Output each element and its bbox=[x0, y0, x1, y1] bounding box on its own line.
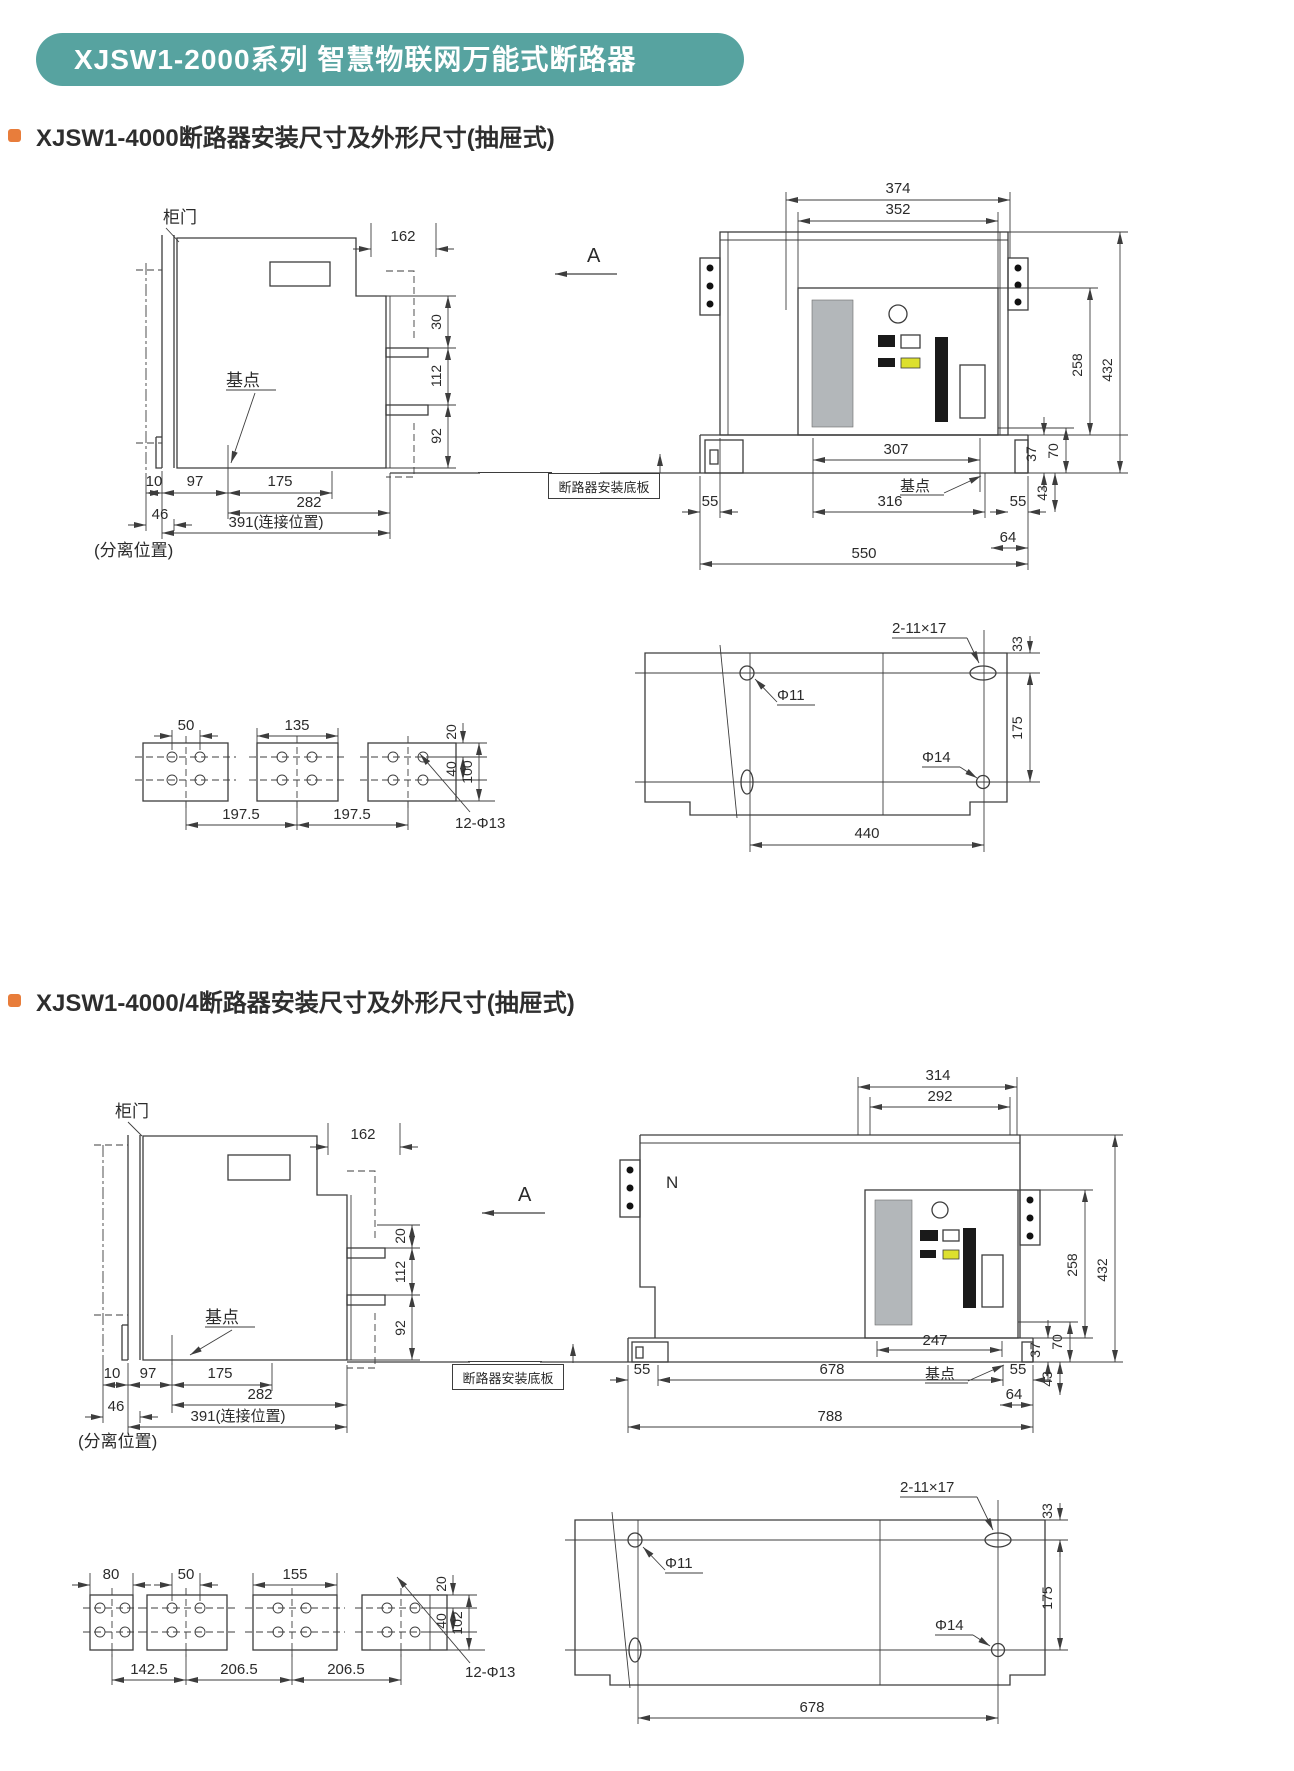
breaker-button-2 bbox=[932, 1202, 948, 1218]
holes-12-phi13-label: 12-Φ13 bbox=[455, 815, 505, 832]
dim-55-left-2: 55 bbox=[634, 1361, 651, 1378]
dim-282-2: 282 bbox=[247, 1386, 272, 1403]
dim-391-connect-2: 391(连接位置) bbox=[190, 1408, 285, 1425]
dim-70: 70 bbox=[1045, 443, 1061, 459]
dim-33-2: 33 bbox=[1039, 1503, 1055, 1519]
breaker-panel-gray-2 bbox=[875, 1200, 912, 1325]
dim-33: 33 bbox=[1009, 636, 1025, 652]
dim-307: 307 bbox=[883, 441, 908, 458]
slot-2-11x17-label-2: 2-11×17 bbox=[900, 1479, 954, 1496]
indicator-yellow-2 bbox=[943, 1250, 959, 1259]
dim-314: 314 bbox=[925, 1067, 950, 1084]
dim-10: 10 bbox=[146, 473, 163, 490]
s2-front-view-drawing: N bbox=[540, 985, 1160, 1455]
dim-175-top: 175 bbox=[1009, 716, 1025, 740]
dim-206-5-b: 206.5 bbox=[327, 1661, 365, 1678]
bullet-icon bbox=[8, 129, 21, 142]
dim-55-left: 55 bbox=[702, 493, 719, 510]
dim-80: 80 bbox=[103, 1566, 120, 1583]
phi14-label: Φ14 bbox=[922, 749, 951, 766]
s1-front-dimensions: 374 352 258 432 37 70 43 307 基点 bbox=[682, 180, 1128, 570]
s1-side-dimensions: 162 30 112 92 基点 10 97 17 bbox=[94, 223, 456, 560]
dim-247: 247 bbox=[922, 1332, 947, 1349]
dim-316: 316 bbox=[877, 493, 902, 510]
dim-97-2: 97 bbox=[140, 1365, 157, 1382]
s2-plates-dimensions: 80 50 155 20 40 102 142.5 bbox=[72, 1566, 515, 1685]
s1-plates-dimensions: 50 135 20 40 100 197.5 197.5 12-Φ13 bbox=[154, 717, 505, 832]
separated-position-label-2: (分离位置) bbox=[78, 1432, 157, 1451]
dim-440: 440 bbox=[854, 825, 879, 842]
s1-top-view-drawing: 2-11×17 Φ11 Φ14 33 175 440 bbox=[615, 540, 1035, 860]
dim-175-2: 175 bbox=[207, 1365, 232, 1382]
dim-50: 50 bbox=[178, 717, 195, 734]
dim-432-2: 432 bbox=[1094, 1258, 1110, 1282]
dim-197-5-a: 197.5 bbox=[222, 806, 260, 823]
dim-258: 258 bbox=[1069, 353, 1085, 377]
dim-70-2: 70 bbox=[1049, 1334, 1065, 1350]
base-point-label: 基点 bbox=[226, 371, 260, 390]
breaker-handle bbox=[935, 337, 948, 422]
dim-175-top-2: 175 bbox=[1039, 1586, 1055, 1610]
dim-55-right-2: 55 bbox=[1010, 1361, 1027, 1378]
phi14-label-2: Φ14 bbox=[935, 1617, 964, 1634]
s2-side-dimensions: 162 20 112 92 基点 10 97 17 bbox=[78, 1123, 420, 1451]
s1-side-view-drawing: 柜门 162 bbox=[80, 175, 480, 565]
s2-top-view-drawing: 2-11×17 Φ11 Φ14 33 175 678 bbox=[540, 1470, 1110, 1770]
dim-46: 46 bbox=[152, 506, 169, 523]
s2-side-structure bbox=[94, 1122, 470, 1368]
bullet-icon bbox=[8, 994, 21, 1007]
dim-112-2: 112 bbox=[392, 1261, 408, 1284]
indicator-yellow bbox=[901, 358, 920, 368]
s1-front-structure bbox=[600, 232, 1028, 473]
breaker-panel-gray bbox=[812, 300, 853, 427]
phi11-label: Φ11 bbox=[777, 687, 805, 704]
dim-55-right: 55 bbox=[1010, 493, 1027, 510]
dim-391-connect: 391(连接位置) bbox=[228, 514, 323, 531]
dim-92-2: 92 bbox=[392, 1320, 408, 1336]
dim-40: 40 bbox=[443, 761, 459, 777]
base-point-label-front: 基点 bbox=[900, 478, 930, 495]
breaker-handle-2 bbox=[963, 1228, 976, 1308]
dim-37: 37 bbox=[1023, 446, 1039, 462]
page-title-banner: XJSW1-2000系列 智慧物联网万能式断路器 bbox=[36, 33, 744, 86]
s1-top-structure bbox=[635, 630, 1015, 818]
dim-20-3: 20 bbox=[433, 1576, 449, 1592]
view-a-label: A bbox=[587, 245, 601, 267]
dim-678: 678 bbox=[819, 1361, 844, 1378]
dim-20-2: 20 bbox=[392, 1228, 408, 1244]
dim-50-2: 50 bbox=[178, 1566, 195, 1583]
dim-432: 432 bbox=[1099, 358, 1115, 382]
breaker-button bbox=[889, 305, 907, 323]
page: XJSW1-2000系列 智慧物联网万能式断路器 XJSW1-4000断路器安装… bbox=[0, 0, 1294, 1771]
dim-100: 100 bbox=[459, 760, 475, 784]
slot-2-11x17-label: 2-11×17 bbox=[892, 620, 946, 637]
view-a-label-2: A bbox=[518, 1184, 532, 1206]
s1-top-dimensions: 2-11×17 Φ11 Φ14 33 175 440 bbox=[750, 620, 1040, 852]
s1-front-view-drawing: 374 352 258 432 37 70 43 307 基点 bbox=[600, 160, 1160, 570]
dim-162: 162 bbox=[390, 228, 415, 245]
s2-side-view-drawing: 柜门 162 bbox=[60, 975, 470, 1455]
dim-43: 43 bbox=[1034, 485, 1050, 501]
dim-282: 282 bbox=[296, 494, 321, 511]
dim-64-2: 64 bbox=[1006, 1386, 1023, 1403]
s2-view-a-arrow: A bbox=[470, 1175, 550, 1223]
dim-206-5-a: 206.5 bbox=[220, 1661, 258, 1678]
phi11-label-2: Φ11 bbox=[665, 1555, 693, 1572]
dim-197-5-b: 197.5 bbox=[333, 806, 371, 823]
dim-155: 155 bbox=[282, 1566, 307, 1583]
s1-plates-structure bbox=[135, 736, 464, 808]
dim-175: 175 bbox=[267, 473, 292, 490]
s1-base-line bbox=[478, 472, 552, 473]
s2-hole-plates-drawing: 80 50 155 20 40 102 142.5 bbox=[45, 1555, 535, 1735]
cabinet-door-label: 柜门 bbox=[163, 208, 197, 227]
s2-top-structure bbox=[565, 1500, 1055, 1688]
s2-front-structure: N bbox=[540, 1135, 1040, 1362]
holes-12-phi13-label-2: 12-Φ13 bbox=[465, 1664, 515, 1681]
cabinet-door-label-2: 柜门 bbox=[115, 1102, 149, 1121]
dim-40-2: 40 bbox=[433, 1613, 449, 1629]
dim-97: 97 bbox=[187, 473, 204, 490]
dim-788: 788 bbox=[817, 1408, 842, 1425]
base-point-label-2: 基点 bbox=[205, 1308, 239, 1327]
s2-plates-structure bbox=[83, 1588, 455, 1657]
dim-46-2: 46 bbox=[108, 1398, 125, 1415]
s2-front-dimensions: 314 292 258 432 37 70 43 247 基点 bbox=[610, 1067, 1123, 1433]
section1-heading: XJSW1-4000断路器安装尺寸及外形尺寸(抽屉式) bbox=[8, 118, 555, 153]
dim-37-2: 37 bbox=[1027, 1342, 1043, 1358]
dim-258-2: 258 bbox=[1064, 1253, 1080, 1277]
dim-30: 30 bbox=[428, 314, 444, 330]
dim-102: 102 bbox=[449, 1611, 465, 1635]
s2-base-line bbox=[468, 1361, 542, 1362]
dim-162-2: 162 bbox=[350, 1126, 375, 1143]
section1-heading-text: XJSW1-4000断路器安装尺寸及外形尺寸(抽屉式) bbox=[36, 118, 555, 153]
dim-92: 92 bbox=[428, 428, 444, 444]
dim-43-2: 43 bbox=[1039, 1371, 1055, 1387]
dim-292: 292 bbox=[927, 1088, 952, 1105]
neutral-pole-label: N bbox=[666, 1173, 678, 1192]
dim-10-2: 10 bbox=[104, 1365, 121, 1382]
dim-678-top: 678 bbox=[799, 1699, 824, 1716]
s1-hole-plates-drawing: 50 135 20 40 100 197.5 197.5 12-Φ13 bbox=[105, 630, 545, 845]
dim-20: 20 bbox=[443, 724, 459, 740]
separated-position-label: (分离位置) bbox=[94, 541, 173, 560]
dim-374: 374 bbox=[885, 180, 910, 197]
dim-135: 135 bbox=[284, 717, 309, 734]
dim-352: 352 bbox=[885, 201, 910, 218]
s2-top-dimensions: 2-11×17 Φ11 Φ14 33 175 678 bbox=[638, 1479, 1068, 1724]
dim-142-5: 142.5 bbox=[130, 1661, 168, 1678]
dim-112: 112 bbox=[428, 365, 444, 388]
